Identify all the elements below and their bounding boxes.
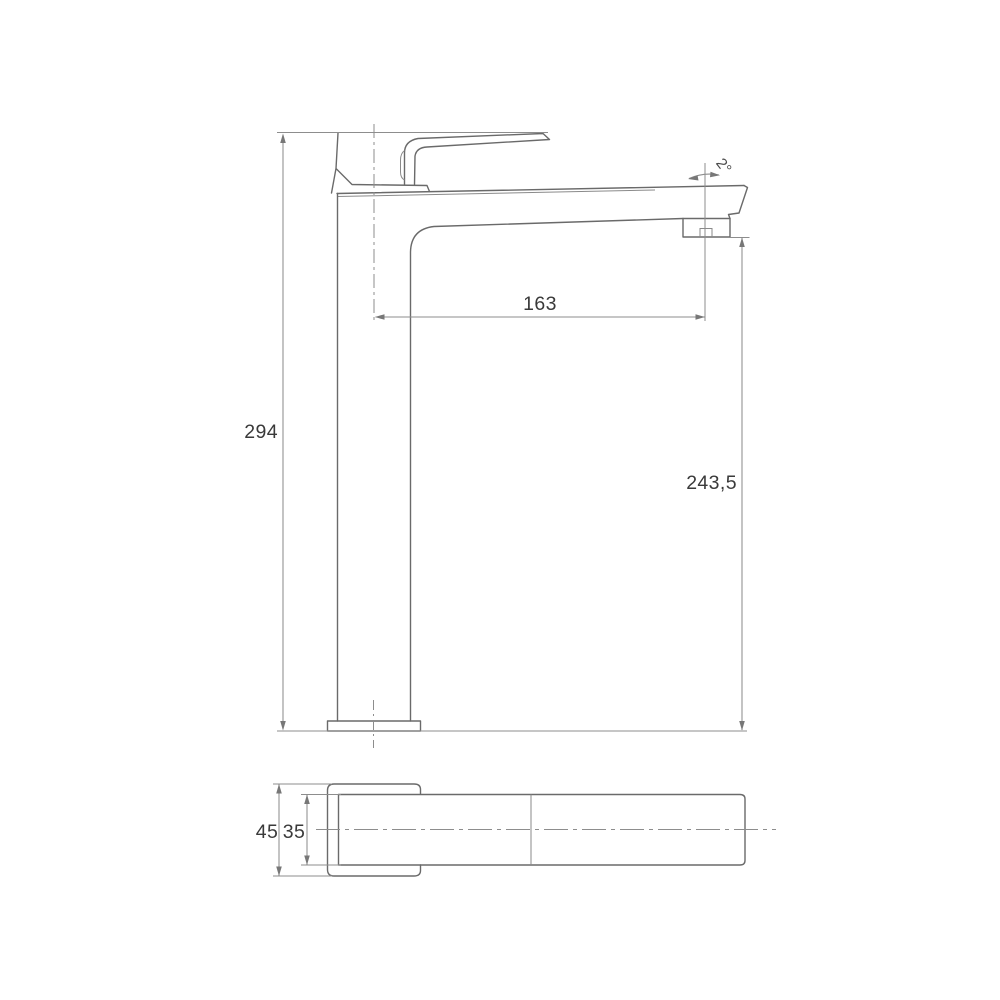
spout-tip-edge <box>729 186 748 219</box>
arrow-left-icon <box>375 314 385 320</box>
dim-label-spout-outlet-height: 243,5 <box>686 472 737 494</box>
arrow-down-icon <box>304 856 310 866</box>
side-view <box>328 124 748 748</box>
dim-label-base-width: 45 <box>256 821 279 843</box>
dim-label-overall-height: 294 <box>244 421 278 443</box>
dim-spout-outlet-height: 243,5 <box>686 238 749 731</box>
arrow-up-icon <box>304 795 310 805</box>
arrow-up-icon <box>276 784 282 794</box>
dim-spout-angle: 2° <box>688 155 735 180</box>
handle-lever <box>405 134 550 185</box>
arrow-down-icon <box>739 721 745 731</box>
aerator-housing <box>683 219 730 238</box>
dim-overall-height: 294 <box>244 133 747 732</box>
aerator-notch <box>700 229 712 238</box>
drawing-canvas: 294 243,5 163 2° <box>0 0 1000 1000</box>
arrow-up-icon <box>280 134 286 144</box>
faucet-technical-drawing: 294 243,5 163 2° <box>0 0 1000 1000</box>
plan-view <box>316 784 776 876</box>
dim-spout-reach: 163 <box>375 293 705 320</box>
arrow-down-icon <box>276 867 282 877</box>
dim-label-spout-reach: 163 <box>523 293 557 315</box>
arrow-up-icon <box>739 238 745 248</box>
arrow-down-icon <box>280 721 286 731</box>
arrow-right-icon <box>696 314 706 320</box>
dim-label-spout-width: 35 <box>283 821 306 843</box>
